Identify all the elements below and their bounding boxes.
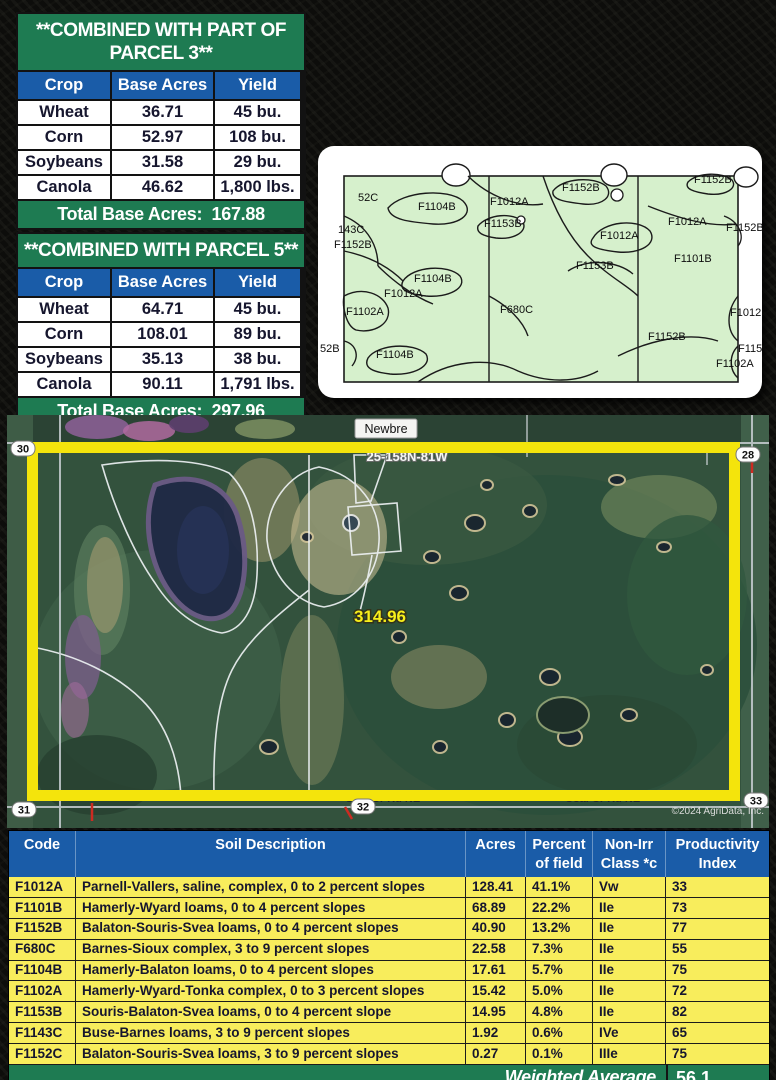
- soil-acres: 1.92: [466, 1023, 526, 1044]
- weighted-average-value: 56.1: [666, 1065, 769, 1080]
- soil-table-header: Code Soil Description Acres Percent of f…: [9, 831, 769, 877]
- soil-code: F1012A: [9, 877, 76, 898]
- crop-row: Canola 90.11 1,791 lbs.: [18, 373, 304, 396]
- soil-percent-of-field: 5.0%: [526, 981, 593, 1002]
- soil-percent-of-field: 0.6%: [526, 1023, 593, 1044]
- soil-description: Barnes-Sioux complex, 3 to 9 percent slo…: [76, 940, 466, 961]
- crop-name: Wheat: [18, 101, 110, 124]
- soil-productivity-index: 55: [666, 940, 769, 961]
- column-header-productivity-index: Productivity Index: [666, 831, 769, 877]
- soil-description: Balaton-Souris-Svea loams, 3 to 9 percen…: [76, 1044, 466, 1065]
- soil-map-label: F1152B: [726, 222, 762, 234]
- soil-productivity-index: 75: [666, 961, 769, 982]
- soil-map-label: F1012A: [384, 288, 423, 300]
- aerial-photo: 25-158N-81W Coal Cr Rd NE Coal Cr Rd NE …: [7, 415, 769, 828]
- column-header-base-acres: Base Acres: [112, 269, 213, 296]
- column-header-yield: Yield: [215, 269, 300, 296]
- crop-row: Soybeans 35.13 38 bu.: [18, 348, 304, 371]
- crop-yield: 29 bu.: [215, 151, 300, 174]
- column-header-percent-of-field: Percent of field: [526, 831, 593, 877]
- weighted-average-row: Weighted Average 56.1: [9, 1065, 769, 1080]
- soil-row: F680C Barnes-Sioux complex, 3 to 9 perce…: [9, 940, 769, 961]
- soil-code: F1101B: [9, 898, 76, 919]
- crop-name: Canola: [18, 373, 110, 396]
- soil-map-label: F1102A: [716, 358, 754, 370]
- soil-percent-of-field: 22.2%: [526, 898, 593, 919]
- soil-row: F1152B Balaton-Souris-Svea loams, 0 to 4…: [9, 919, 769, 940]
- crop-base-acres: 108.01: [112, 323, 213, 346]
- soil-map-card: 52C143CF1152BF1104BF1012AF1153BF1152BF11…: [318, 146, 762, 398]
- soil-non-irr-class: IIe: [593, 940, 666, 961]
- soil-acres: 17.61: [466, 961, 526, 982]
- parcel-acreage-label: 314.96: [354, 607, 406, 626]
- soil-row: F1143C Buse-Barnes loams, 3 to 9 percent…: [9, 1023, 769, 1044]
- column-header-yield: Yield: [215, 72, 300, 99]
- crop-base-acres: 35.13: [112, 348, 213, 371]
- soil-non-irr-class: IIe: [593, 898, 666, 919]
- column-header-soil-description: Soil Description: [76, 831, 466, 877]
- table-body: Wheat 64.71 45 bu. Corn 108.01 89 bu. So…: [18, 298, 304, 396]
- crop-yield: 1,791 lbs.: [215, 373, 300, 396]
- soil-description: Souris-Balaton-Svea loams, 0 to 4 percen…: [76, 1002, 466, 1023]
- soil-non-irr-class: IIe: [593, 919, 666, 940]
- column-header-non-irr-class: Non-Irr Class *c: [593, 831, 666, 877]
- section-number: 31: [18, 805, 30, 817]
- soil-acres: 14.95: [466, 1002, 526, 1023]
- soil-map-label: F1152B: [562, 182, 600, 194]
- soil-map-label: F1012A: [668, 216, 707, 228]
- soil-productivity-index: 73: [666, 898, 769, 919]
- soil-map-label: 52C: [358, 192, 378, 204]
- soil-code: F1152B: [9, 919, 76, 940]
- crop-row: Corn 52.97 108 bu.: [18, 126, 304, 149]
- soil-code: F1153B: [9, 1002, 76, 1023]
- combined-parcel-3-table: **COMBINED WITH PART OF PARCEL 3** Crop …: [16, 12, 306, 230]
- soil-map-label: F1152B: [694, 174, 732, 186]
- table-header-row: Crop Base Acres Yield: [18, 269, 304, 296]
- crop-name: Corn: [18, 323, 110, 346]
- soil-acres: 22.58: [466, 940, 526, 961]
- crop-base-acres: 36.71: [112, 101, 213, 124]
- column-header-code: Code: [9, 831, 76, 877]
- soil-percent-of-field: 4.8%: [526, 1002, 593, 1023]
- crop-row: Corn 108.01 89 bu.: [18, 323, 304, 346]
- crop-name: Soybeans: [18, 151, 110, 174]
- soil-row: F1152C Balaton-Souris-Svea loams, 3 to 9…: [9, 1044, 769, 1065]
- soil-non-irr-class: Vw: [593, 877, 666, 898]
- soil-code: F1104B: [9, 961, 76, 982]
- soil-map: 52C143CF1152BF1104BF1012AF1153BF1152BF11…: [318, 146, 762, 398]
- weighted-average-label: Weighted Average: [9, 1067, 666, 1080]
- copyright-label: ©2024 AgriData, Inc.: [672, 806, 764, 817]
- soil-map-label: F680C: [500, 304, 533, 316]
- soil-code: F1152C: [9, 1044, 76, 1065]
- soil-map-label: F1101B: [674, 253, 712, 265]
- column-header-acres: Acres: [466, 831, 526, 877]
- crop-name: Soybeans: [18, 348, 110, 371]
- combined-parcel-5-table: **COMBINED WITH PARCEL 5** Crop Base Acr…: [16, 232, 306, 427]
- soil-table-body: F1012A Parnell-Vallers, saline, complex,…: [9, 877, 769, 1065]
- soil-code: F680C: [9, 940, 76, 961]
- soil-map-label: F1012A: [490, 196, 529, 208]
- table-title: **COMBINED WITH PART OF PARCEL 3**: [18, 14, 304, 70]
- crop-base-acres: 46.62: [112, 176, 213, 199]
- table-body: Wheat 36.71 45 bu. Corn 52.97 108 bu. So…: [18, 101, 304, 199]
- soil-code: F1102A: [9, 981, 76, 1002]
- soil-map-label: F1104B: [376, 349, 414, 361]
- soil-percent-of-field: 0.1%: [526, 1044, 593, 1065]
- soil-productivity-index: 75: [666, 1044, 769, 1065]
- soil-code: F1143C: [9, 1023, 76, 1044]
- soil-row: F1101B Hamerly-Wyard loams, 0 to 4 perce…: [9, 898, 769, 919]
- soil-productivity-index: 65: [666, 1023, 769, 1044]
- soil-non-irr-class: IIe: [593, 981, 666, 1002]
- soil-productivity-index: 72: [666, 981, 769, 1002]
- crop-yield: 38 bu.: [215, 348, 300, 371]
- crop-yield: 1,800 lbs.: [215, 176, 300, 199]
- town-label: Newbre: [364, 422, 407, 436]
- soil-map-label: F1152B: [334, 239, 372, 251]
- section-number: 30: [17, 444, 29, 456]
- crop-row: Canola 46.62 1,800 lbs.: [18, 176, 304, 199]
- soil-row: F1012A Parnell-Vallers, saline, complex,…: [9, 877, 769, 898]
- soil-acres: 68.89: [466, 898, 526, 919]
- crop-row: Wheat 64.71 45 bu.: [18, 298, 304, 321]
- crop-yield: 45 bu.: [215, 298, 300, 321]
- crop-base-acres: 52.97: [112, 126, 213, 149]
- soil-non-irr-class: IIe: [593, 961, 666, 982]
- crop-base-acres: 64.71: [112, 298, 213, 321]
- soil-percent-of-field: 7.3%: [526, 940, 593, 961]
- column-header-base-acres: Base Acres: [112, 72, 213, 99]
- soil-map-label: F1153B: [576, 260, 614, 272]
- soil-description: Buse-Barnes loams, 3 to 9 percent slopes: [76, 1023, 466, 1044]
- soil-description: Hamerly-Wyard-Tonka complex, 0 to 3 perc…: [76, 981, 466, 1002]
- table-title: **COMBINED WITH PARCEL 5**: [18, 234, 304, 267]
- soil-map-label: F115: [738, 343, 762, 355]
- column-header-crop: Crop: [18, 72, 110, 99]
- soil-row: F1153B Souris-Balaton-Svea loams, 0 to 4…: [9, 1002, 769, 1023]
- soil-map-label: F1153B: [484, 218, 522, 230]
- column-header-crop: Crop: [18, 269, 110, 296]
- soil-acres: 128.41: [466, 877, 526, 898]
- soil-percent-of-field: 41.1%: [526, 877, 593, 898]
- soil-productivity-index: 77: [666, 919, 769, 940]
- soil-non-irr-class: IIe: [593, 1002, 666, 1023]
- soil-description: Balaton-Souris-Svea loams, 0 to 4 percen…: [76, 919, 466, 940]
- soil-map-label: F1104B: [418, 201, 456, 213]
- crop-base-acres: 90.11: [112, 373, 213, 396]
- crop-name: Wheat: [18, 298, 110, 321]
- soil-productivity-index: 82: [666, 1002, 769, 1023]
- soil-row: F1102A Hamerly-Wyard-Tonka complex, 0 to…: [9, 981, 769, 1002]
- soil-acres: 15.42: [466, 981, 526, 1002]
- soil-map-label: 52B: [320, 343, 340, 355]
- soil-map-label: 143C: [338, 224, 364, 236]
- town-label-box: Newbre: [355, 419, 417, 438]
- soil-map-label: F1012: [730, 307, 761, 319]
- soil-non-irr-class: IVe: [593, 1023, 666, 1044]
- crop-yield: 45 bu.: [215, 101, 300, 124]
- soil-acres: 0.27: [466, 1044, 526, 1065]
- section-number: 28: [742, 450, 754, 462]
- soil-map-label: F1104B: [414, 273, 452, 285]
- soil-acres: 40.90: [466, 919, 526, 940]
- soil-map-label: F1102A: [346, 306, 384, 318]
- crop-name: Canola: [18, 176, 110, 199]
- crop-yield: 108 bu.: [215, 126, 300, 149]
- soil-description-table: Code Soil Description Acres Percent of f…: [8, 830, 770, 1080]
- crop-row: Soybeans 31.58 29 bu.: [18, 151, 304, 174]
- crop-base-acres: 31.58: [112, 151, 213, 174]
- soil-productivity-index: 33: [666, 877, 769, 898]
- section-number: 32: [357, 802, 369, 814]
- crop-name: Corn: [18, 126, 110, 149]
- aerial-photo-canvas: 25-158N-81W Coal Cr Rd NE Coal Cr Rd NE …: [7, 415, 769, 828]
- soil-description: Parnell-Vallers, saline, complex, 0 to 2…: [76, 877, 466, 898]
- soil-row: F1104B Hamerly-Balaton loams, 0 to 4 per…: [9, 961, 769, 982]
- total-base-acres: Total Base Acres: 167.88: [18, 201, 304, 228]
- table-header-row: Crop Base Acres Yield: [18, 72, 304, 99]
- crop-row: Wheat 36.71 45 bu.: [18, 101, 304, 124]
- soil-map-label: F1012A: [600, 230, 639, 242]
- soil-percent-of-field: 5.7%: [526, 961, 593, 982]
- soil-percent-of-field: 13.2%: [526, 919, 593, 940]
- soil-map-label: F1152B: [648, 331, 686, 343]
- crop-yield: 89 bu.: [215, 323, 300, 346]
- soil-description: Hamerly-Balaton loams, 0 to 4 percent sl…: [76, 961, 466, 982]
- soil-report-page: **COMBINED WITH PART OF PARCEL 3** Crop …: [0, 0, 776, 1080]
- soil-description: Hamerly-Wyard loams, 0 to 4 percent slop…: [76, 898, 466, 919]
- soil-non-irr-class: IIIe: [593, 1044, 666, 1065]
